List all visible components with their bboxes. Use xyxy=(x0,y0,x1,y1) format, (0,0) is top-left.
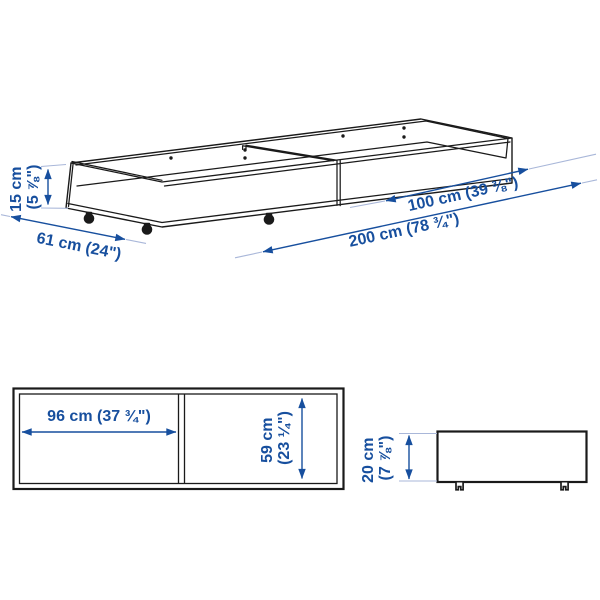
dimension-label-line2: (23 ¼") xyxy=(276,411,293,465)
dimension-label-line2: (7 ⅞") xyxy=(377,436,394,481)
diagram-canvas: 15 cm (5 ⅞") 61 cm (24") 100 cm (39 ⅜") … xyxy=(0,0,600,600)
side-view: 20 cm (7 ⅞") xyxy=(360,432,587,490)
drill-hole xyxy=(243,148,246,151)
caster-wheel xyxy=(142,224,153,235)
caster-feet xyxy=(456,483,568,490)
dimension-label-line1: 20 cm xyxy=(360,438,377,483)
dimension-label: 96 cm (37 ¾") xyxy=(47,408,151,425)
drill-hole xyxy=(402,135,405,138)
dimension-label: 59 cm (23 ¼") xyxy=(259,411,293,465)
drill-hole xyxy=(341,134,344,137)
dimension-label: 15 cm (5 ⅞") xyxy=(8,162,42,212)
box-side-outline xyxy=(438,432,587,483)
dimension-label-line1: 15 cm xyxy=(8,167,25,212)
extension-ticks xyxy=(41,165,68,209)
perspective-view: 15 cm (5 ⅞") 61 cm (24") 100 cm (39 ⅜") … xyxy=(1,119,597,263)
drill-hole xyxy=(243,156,246,159)
product-dimension-diagram: 15 cm (5 ⅞") 61 cm (24") 100 cm (39 ⅜") … xyxy=(0,0,600,600)
dimension-label: 61 cm (24") xyxy=(35,230,123,263)
caster-wheel xyxy=(264,214,275,225)
drill-hole xyxy=(402,126,405,129)
dimension-height-20cm: 20 cm (7 ⅞") xyxy=(360,433,437,483)
dimension-label: 200 cm (78 ¾") xyxy=(347,210,461,250)
caster-wheel xyxy=(84,213,95,224)
dimension-depth-61cm: 61 cm (24") xyxy=(1,215,146,264)
dimension-height-15cm: 15 cm (5 ⅞") xyxy=(8,162,68,212)
dimension-label-line1: 59 cm xyxy=(259,418,276,463)
caster-foot xyxy=(456,483,463,490)
dimension-label-line2: (5 ⅞") xyxy=(25,165,42,210)
top-view: 96 cm (37 ¾") 59 cm (23 ¼") xyxy=(14,389,344,490)
caster-foot xyxy=(561,483,568,490)
dimension-label: 20 cm (7 ⅞") xyxy=(360,433,394,483)
drill-hole xyxy=(169,156,172,159)
extension-ticks xyxy=(399,434,437,482)
box-outline xyxy=(66,119,512,227)
